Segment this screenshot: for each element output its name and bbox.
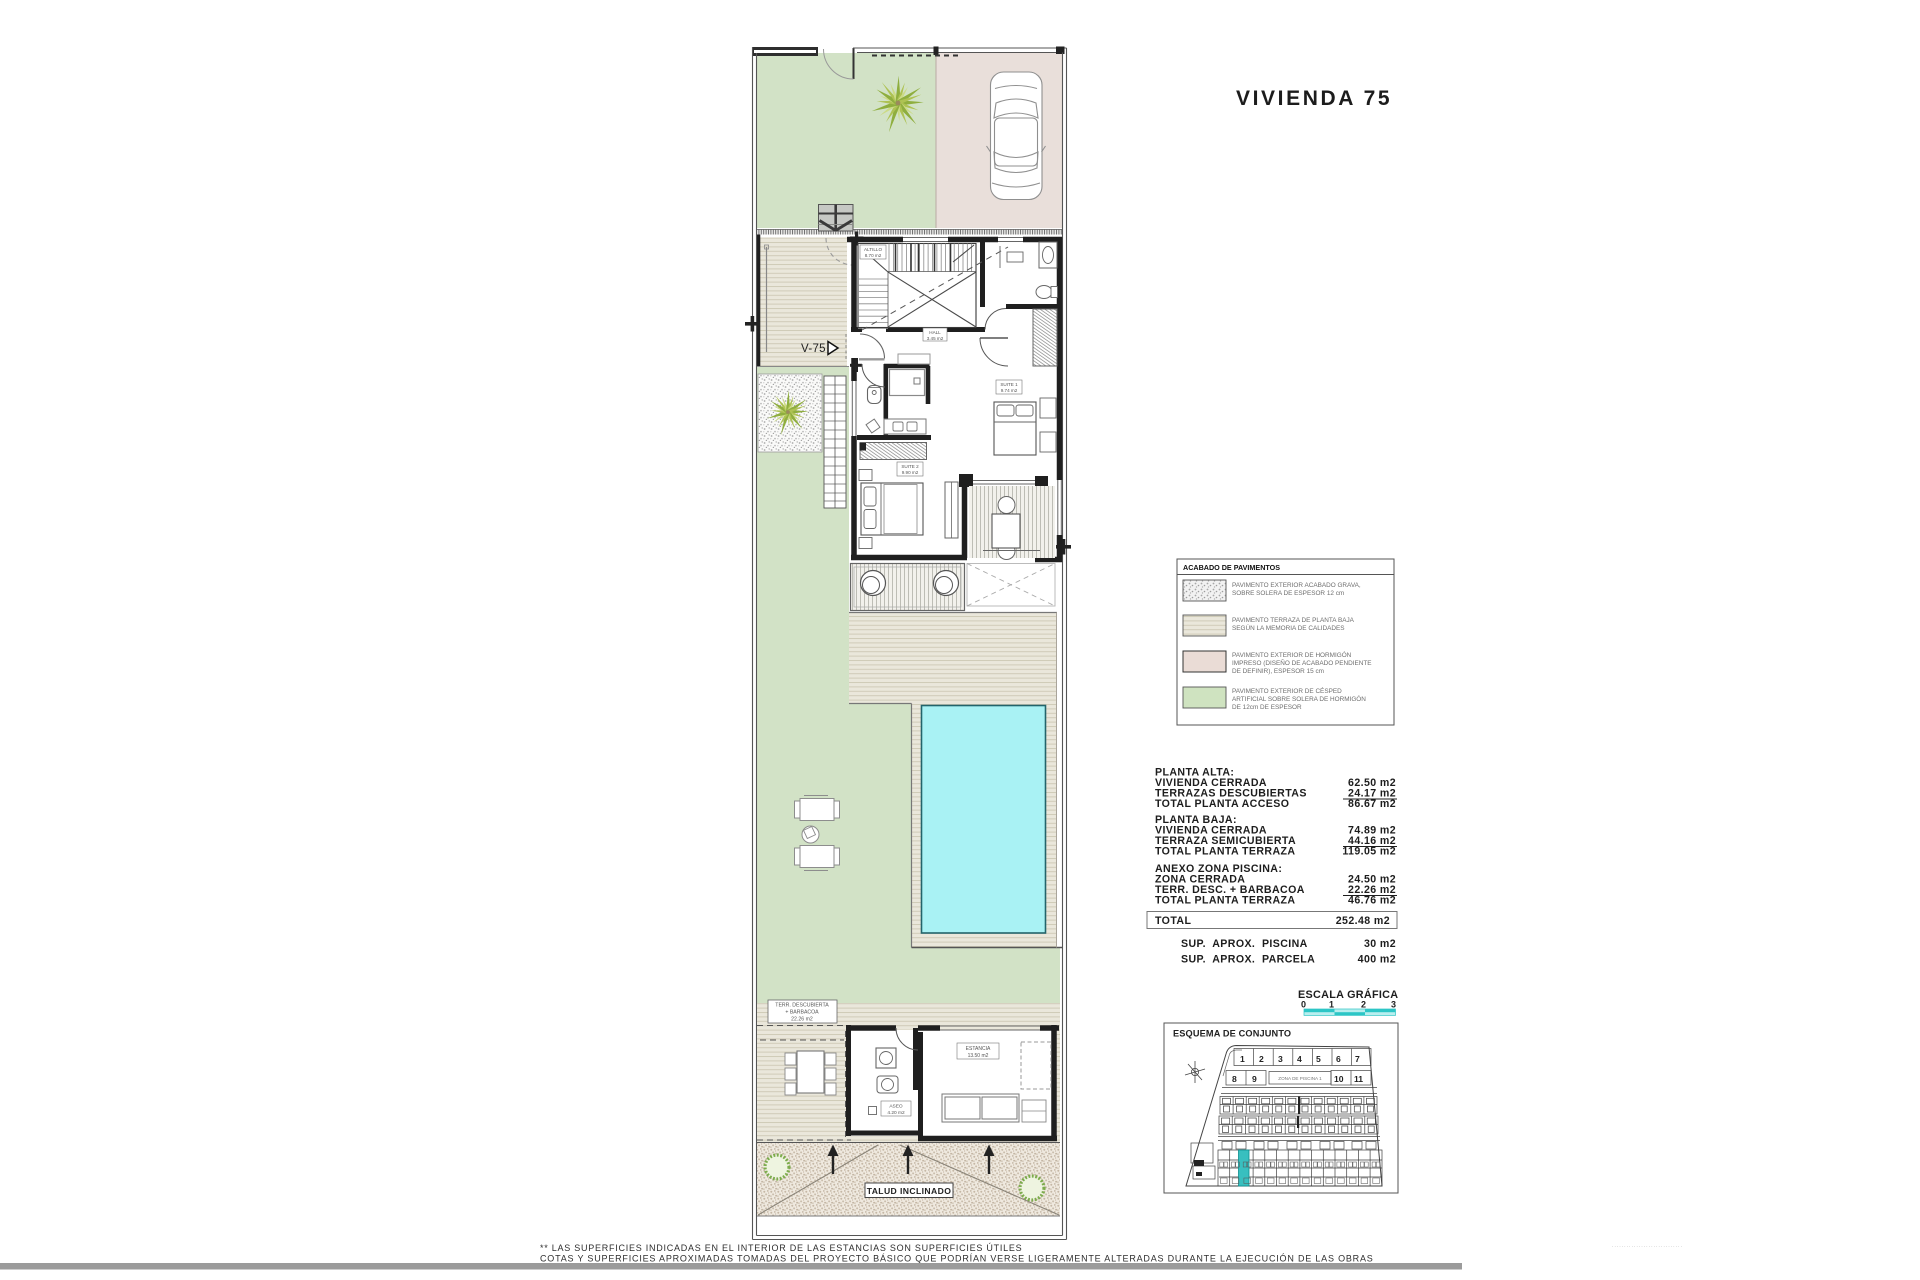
svg-text:22.26 m2: 22.26 m2: [791, 1017, 813, 1023]
svg-text:V-75: V-75: [801, 343, 826, 355]
svg-text:13.50 m2: 13.50 m2: [968, 1053, 989, 1059]
svg-text:SEGÚN LA MEMORIA DE CALIDADES: SEGÚN LA MEMORIA DE CALIDADES: [1232, 623, 1345, 632]
svg-text:252.48 m2: 252.48 m2: [1336, 915, 1390, 927]
svg-text:SUP. APROX. PISCINA: SUP. APROX. PISCINA: [1181, 938, 1308, 950]
svg-text:3: 3: [1278, 1054, 1283, 1064]
svg-text:ESCALA GRÁFICA: ESCALA GRÁFICA: [1298, 988, 1398, 1001]
svg-text:COTAS Y SUPERFICIES APROXIMADA: COTAS Y SUPERFICIES APROXIMADAS TOMADAS …: [540, 1254, 1374, 1264]
svg-text:86.67 m2: 86.67 m2: [1348, 798, 1396, 810]
svg-text:TOTAL: TOTAL: [1155, 915, 1191, 927]
svg-text:SUP. APROX. PARCELA: SUP. APROX. PARCELA: [1181, 954, 1315, 966]
svg-text:0: 0: [1301, 1000, 1306, 1010]
svg-text:SUITE 1: SUITE 1: [1000, 382, 1018, 387]
svg-text:4.20 m2: 4.20 m2: [887, 1110, 905, 1116]
svg-text:400 m2: 400 m2: [1358, 954, 1396, 966]
svg-text:8.70 m2: 8.70 m2: [865, 253, 882, 258]
svg-text:ALTILLO: ALTILLO: [864, 247, 882, 252]
svg-text:DE 12cm DE ESPESOR: DE 12cm DE ESPESOR: [1232, 704, 1302, 711]
svg-text:ACABADO DE PAVIMENTOS: ACABADO DE PAVIMENTOS: [1183, 563, 1280, 572]
svg-text:6: 6: [1336, 1054, 1341, 1064]
svg-text:2: 2: [1259, 1054, 1264, 1064]
svg-text:VIVIENDA 75: VIVIENDA 75: [1236, 87, 1392, 110]
svg-text:PAVIMENTO EXTERIOR ACABADO GRA: PAVIMENTO EXTERIOR ACABADO GRAVA,: [1232, 582, 1361, 589]
svg-text:1: 1: [1329, 1000, 1334, 1010]
svg-text:11: 11: [1354, 1074, 1363, 1084]
svg-text:.............................: .............................: [1612, 1243, 1683, 1248]
svg-text:ESTANCIA: ESTANCIA: [966, 1046, 991, 1052]
svg-text:SOBRE SOLERA DE ESPESOR 12 cm: SOBRE SOLERA DE ESPESOR 12 cm: [1232, 590, 1344, 597]
svg-text:30 m2: 30 m2: [1364, 938, 1396, 950]
svg-text:1: 1: [1240, 1054, 1245, 1064]
svg-text:ZONA DE PISCINA 1: ZONA DE PISCINA 1: [1278, 1076, 1322, 1081]
svg-text:TOTAL PLANTA ACCESO: TOTAL PLANTA ACCESO: [1155, 798, 1289, 810]
svg-text:PAVIMENTO TERRAZA DE PLANTA BA: PAVIMENTO TERRAZA DE PLANTA BAJA: [1232, 617, 1355, 624]
svg-text:8: 8: [1232, 1074, 1237, 1084]
svg-text:5: 5: [1316, 1054, 1321, 1064]
svg-text:ASEO: ASEO: [889, 1104, 903, 1110]
svg-text:ARTIFICIAL SOBRE SOLERA DE HOR: ARTIFICIAL SOBRE SOLERA DE HORMIGÓN: [1232, 694, 1366, 703]
svg-text:TOTAL PLANTA TERRAZA: TOTAL PLANTA TERRAZA: [1155, 846, 1295, 858]
svg-text:+ BARBACOA: + BARBACOA: [785, 1010, 819, 1016]
svg-text:3.45 m2: 3.45 m2: [927, 336, 944, 341]
svg-text:119.05 m2: 119.05 m2: [1342, 846, 1396, 858]
svg-text:** LAS SUPERFICIES INDICADAS E: ** LAS SUPERFICIES INDICADAS EN EL INTER…: [540, 1243, 1022, 1253]
svg-text:ESQUEMA DE CONJUNTO: ESQUEMA DE CONJUNTO: [1173, 1029, 1291, 1039]
svg-text:TERR. DESCUBIERTA: TERR. DESCUBIERTA: [775, 1003, 829, 1009]
svg-text:HALL: HALL: [929, 330, 941, 335]
svg-text:9: 9: [1252, 1074, 1257, 1084]
svg-text:TOTAL PLANTA TERRAZA: TOTAL PLANTA TERRAZA: [1155, 895, 1295, 907]
svg-text:DE DEFINIR), ESPESOR 15 cm: DE DEFINIR), ESPESOR 15 cm: [1232, 668, 1324, 675]
svg-text:SUITE 2: SUITE 2: [901, 464, 919, 469]
svg-text:7: 7: [1355, 1054, 1360, 1064]
svg-text:10: 10: [1334, 1074, 1344, 1084]
svg-text:4: 4: [1297, 1054, 1302, 1064]
svg-text:IMPRESO (DISEÑO DE ACABADO PEN: IMPRESO (DISEÑO DE ACABADO PENDIENTE: [1232, 658, 1372, 667]
svg-text:PAVIMENTO EXTERIOR DE CÉSPED: PAVIMENTO EXTERIOR DE CÉSPED: [1232, 686, 1342, 695]
svg-text:9.74 m2: 9.74 m2: [1001, 388, 1018, 393]
svg-text:3: 3: [1391, 1000, 1396, 1010]
svg-text:46.76 m2: 46.76 m2: [1348, 895, 1396, 907]
svg-text:2: 2: [1361, 1000, 1366, 1010]
svg-text:TALUD INCLINADO: TALUD INCLINADO: [867, 1186, 952, 1196]
svg-text:9.90 m2: 9.90 m2: [902, 470, 919, 475]
svg-text:PAVIMENTO EXTERIOR DE HORMIGÓN: PAVIMENTO EXTERIOR DE HORMIGÓN: [1232, 650, 1352, 659]
